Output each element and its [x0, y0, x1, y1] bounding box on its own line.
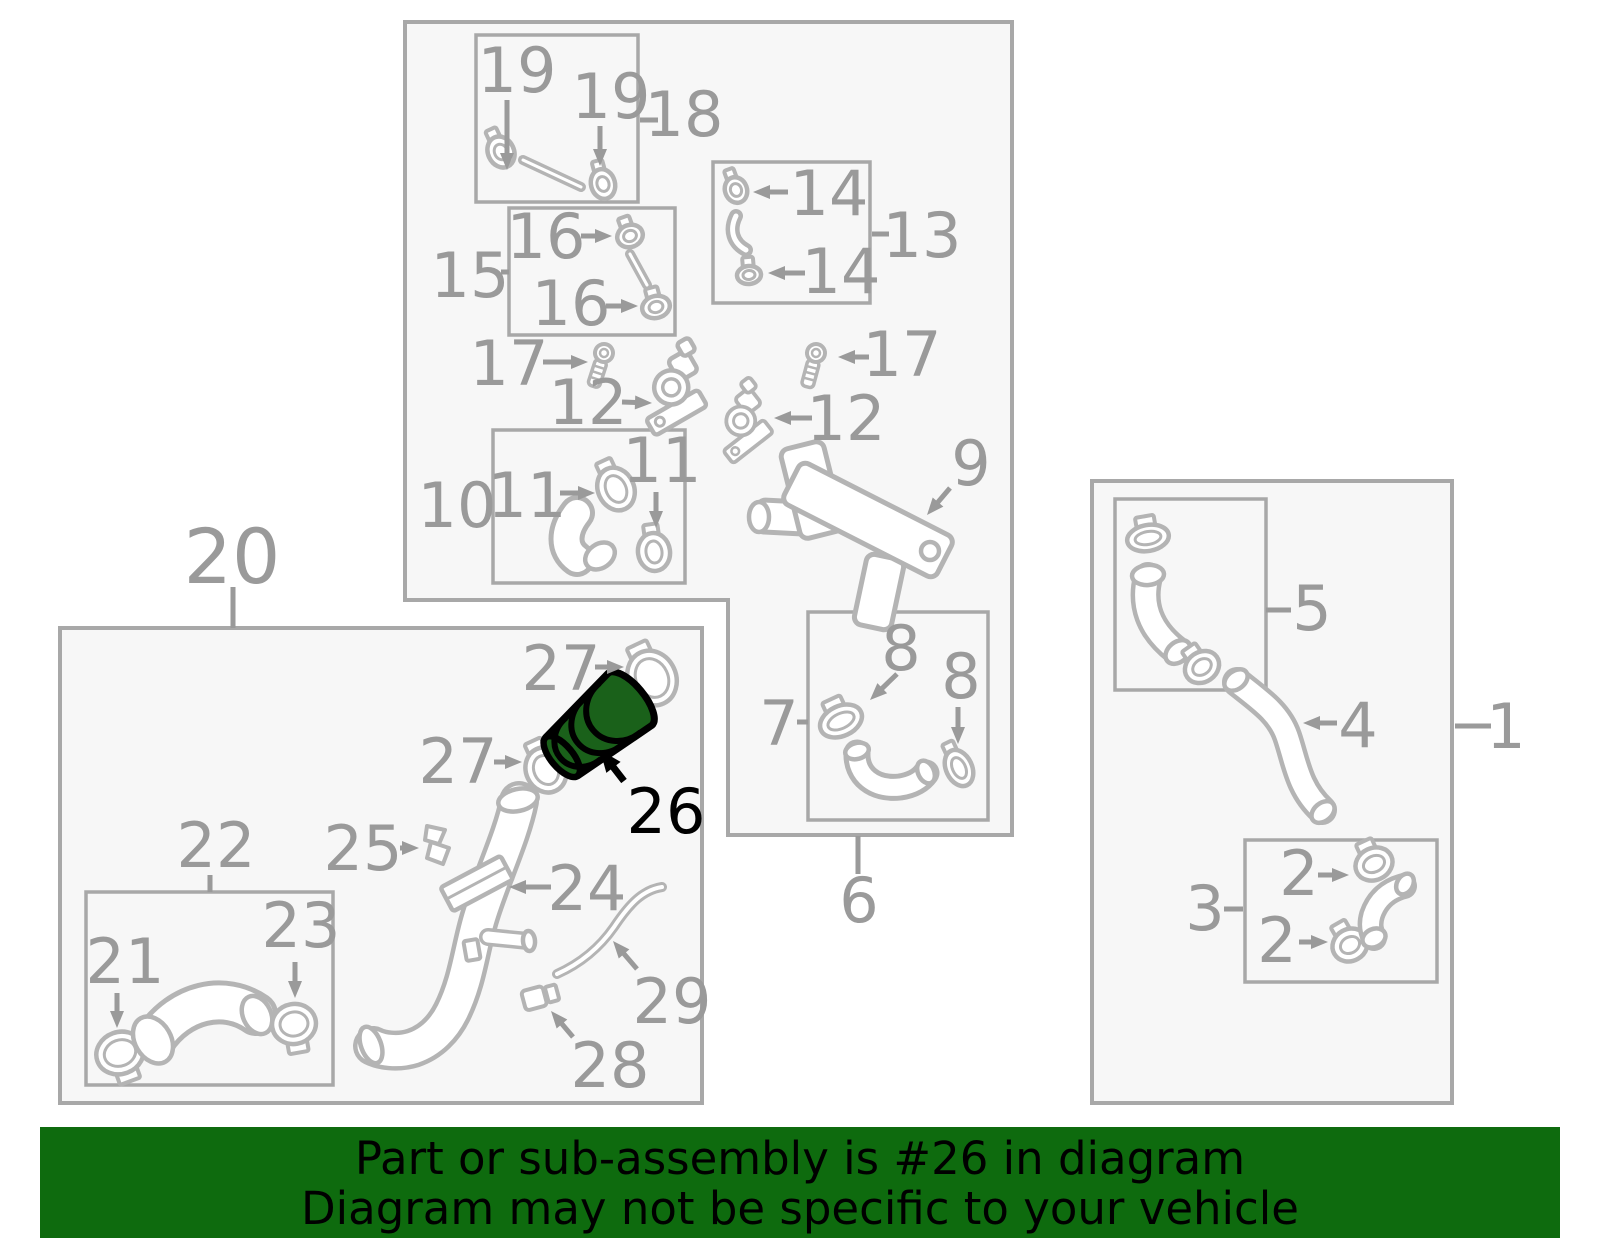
banner-line2: Diagram may not be specific to your vehi… — [40, 1184, 1560, 1234]
part-label-25[interactable]: 25 — [324, 812, 403, 885]
banner-line1: Part or sub-assembly is #26 in diagram — [40, 1127, 1560, 1184]
part-label-15[interactable]: 15 — [431, 239, 510, 312]
part-label-27[interactable]: 27 — [522, 632, 601, 705]
part-label-6[interactable]: 6 — [839, 864, 878, 937]
part-label-29[interactable]: 29 — [633, 965, 712, 1038]
part-label-14[interactable]: 14 — [790, 157, 869, 230]
part-label-22[interactable]: 22 — [177, 809, 256, 882]
part-label-23[interactable]: 23 — [262, 889, 341, 962]
part-label-27[interactable]: 27 — [419, 725, 498, 798]
part-label-16[interactable]: 16 — [507, 200, 586, 273]
part-label-19[interactable]: 19 — [572, 60, 651, 133]
part-label-7[interactable]: 7 — [759, 687, 798, 760]
part-label-12[interactable]: 12 — [807, 382, 886, 455]
part-label-18[interactable]: 18 — [645, 78, 724, 151]
part-label-5[interactable]: 5 — [1292, 572, 1331, 645]
part-label-26[interactable]: 26 — [627, 775, 706, 848]
part-label-10[interactable]: 10 — [418, 469, 497, 542]
part-label-20[interactable]: 20 — [184, 512, 281, 601]
part-label-24[interactable]: 24 — [548, 852, 627, 925]
part-label-19[interactable]: 19 — [478, 34, 557, 107]
clip-25-icon — [425, 826, 449, 864]
part-label-9[interactable]: 9 — [951, 427, 990, 500]
part-label-17[interactable]: 17 — [470, 327, 549, 400]
part-label-11[interactable]: 11 — [488, 459, 567, 532]
part-label-11[interactable]: 11 — [623, 424, 702, 497]
part-label-17[interactable]: 17 — [863, 318, 942, 391]
part-label-14[interactable]: 14 — [802, 235, 881, 308]
part-label-13[interactable]: 13 — [883, 199, 962, 272]
part-label-1[interactable]: 1 — [1486, 690, 1525, 763]
part-label-4[interactable]: 4 — [1338, 689, 1377, 762]
part-label-12[interactable]: 12 — [549, 366, 628, 439]
part-label-21[interactable]: 21 — [86, 925, 165, 998]
parts-diagram: 1919181516161314141717121210111197886202… — [0, 0, 1600, 1249]
part-label-3[interactable]: 3 — [1185, 872, 1224, 945]
parts-diagram-page: 1919181516161314141717121210111197886202… — [0, 0, 1600, 1249]
part-label-2[interactable]: 2 — [1257, 904, 1296, 977]
part-label-8[interactable]: 8 — [881, 612, 920, 685]
part-label-8[interactable]: 8 — [941, 640, 980, 713]
highlight-banner: Part or sub-assembly is #26 in diagram D… — [40, 1127, 1560, 1238]
part-label-28[interactable]: 28 — [571, 1029, 650, 1102]
part-label-2[interactable]: 2 — [1279, 837, 1318, 910]
